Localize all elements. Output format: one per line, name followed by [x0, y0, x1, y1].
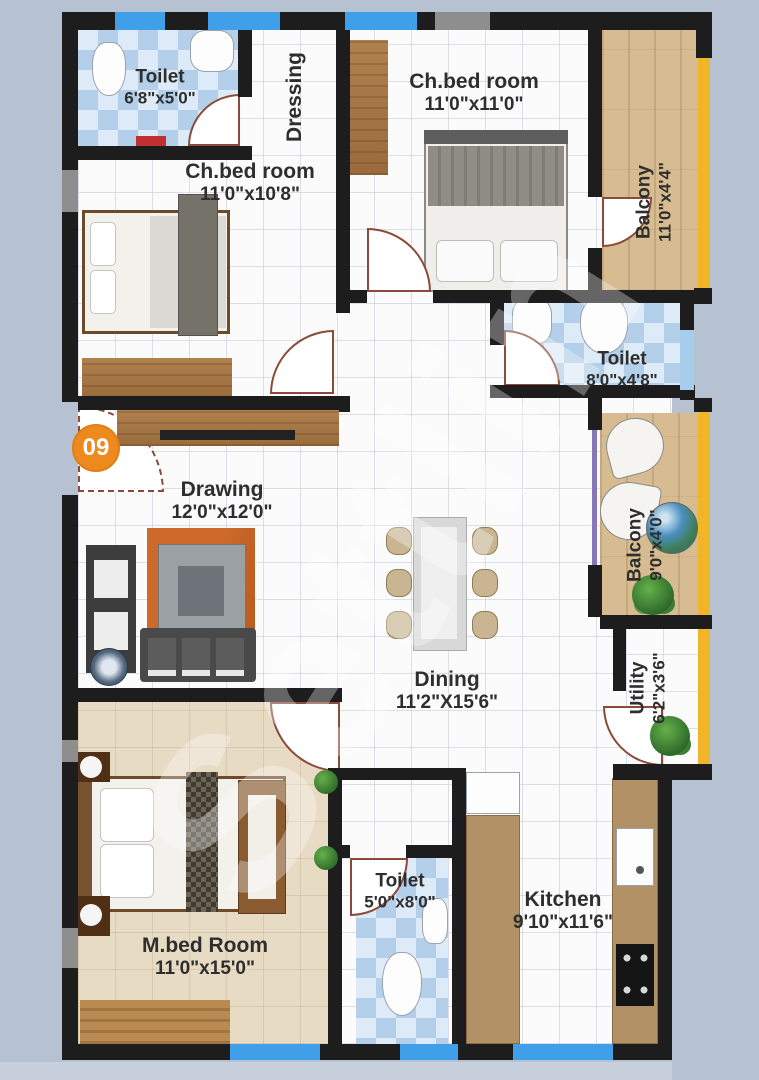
toilet1-wc	[92, 42, 126, 96]
drawing-label: Drawing 12'0"x12'0"	[171, 478, 272, 524]
mbed-wardrobe-mirror	[248, 795, 276, 899]
room-name: Balcony	[633, 162, 655, 242]
room-name: Toilet	[364, 870, 435, 892]
chbed2-right-wall	[588, 12, 602, 197]
mbed-bench	[80, 1000, 230, 1044]
drawing-speaker	[90, 648, 128, 686]
window	[208, 12, 280, 30]
chbed2-right-wall	[588, 248, 602, 303]
unit-number-badge: 09	[72, 424, 120, 472]
wall-column	[62, 170, 78, 212]
nightstand-lamp	[80, 904, 102, 926]
balcony1-edge	[698, 58, 710, 290]
mbed-top-wall	[62, 688, 342, 702]
utility-edge	[698, 615, 710, 765]
toilet2-label: Toilet 8'0"x4'8"	[586, 348, 657, 389]
chbed2-pillow	[500, 240, 558, 282]
sofa-cushion	[182, 638, 210, 676]
toilet1-label: Toilet 6'8"x5'0"	[124, 66, 195, 107]
room-dims: 6'8"x5'0"	[124, 88, 195, 108]
toilet2-left-wall	[490, 303, 504, 345]
toilet3-top-wall	[342, 845, 350, 858]
chbed1-pillow	[90, 270, 116, 314]
dining-chair	[472, 527, 498, 555]
room-name: Kitchen	[513, 888, 613, 912]
room-name: Dressing	[283, 52, 307, 142]
floor-plan-image: Settlin Toilet 6'8"x5'0" Dressing Ch.bed…	[0, 0, 759, 1080]
dining-chair	[472, 611, 498, 639]
chbed2-blanket	[428, 146, 564, 206]
lobby-top-wall	[342, 768, 462, 780]
wall-lintel	[435, 12, 490, 30]
balcony2-left-wall	[588, 565, 602, 617]
room-name: Ch.bed room	[409, 70, 539, 94]
room-name: Drawing	[171, 478, 272, 502]
mbed-label: M.bed Room 11'0"x15'0"	[142, 934, 268, 980]
room-name: M.bed Room	[142, 934, 268, 958]
toilet2-window	[680, 330, 694, 390]
balcony2-utility-wall	[600, 615, 712, 629]
room-name: Toilet	[586, 348, 657, 370]
chbed2-wardrobe	[348, 40, 388, 175]
window	[345, 12, 417, 30]
wall-right-top	[696, 30, 712, 58]
balcony2-left-wall	[588, 398, 602, 430]
room-dims: 11'0"x4'4"	[655, 162, 675, 242]
chbed2-bottom-wall	[336, 290, 367, 303]
room-name: Balcony	[624, 508, 646, 582]
room-dims: 12'0"x12'0"	[171, 502, 272, 524]
room-dims: 9'0"x4'0"	[646, 508, 666, 582]
toilet3-wc	[382, 952, 422, 1016]
dining-chair	[472, 569, 498, 597]
chbed2-bottom-wall	[433, 290, 695, 303]
sofa-cushion	[148, 638, 176, 676]
room-dims: 11'0"x11'0"	[409, 94, 539, 116]
wall-cap	[694, 398, 712, 412]
chbed1-pillow	[90, 222, 116, 266]
utility-bottom-wall	[613, 764, 712, 780]
toilet1-sink	[190, 30, 234, 72]
kitchen-counter-left	[466, 815, 520, 1044]
room-dims: 8'0"x4'8"	[586, 370, 657, 390]
drawing-tv-detail	[178, 566, 224, 616]
room-dims: 11'0"x10'8"	[185, 184, 315, 206]
room-dims: 11'2"X15'6"	[396, 692, 498, 714]
room-name: Ch.bed room	[185, 160, 315, 184]
kitchen-sink	[616, 828, 654, 886]
mbed-runner	[186, 772, 218, 912]
background-patch	[672, 780, 759, 1080]
toilet3-label: Toilet 5'0"x8'0"	[364, 870, 435, 911]
image-bottom-strip	[0, 1062, 759, 1080]
window	[513, 1044, 613, 1060]
dining-chair	[386, 527, 412, 555]
room-dims: 9'10"x11'6"	[513, 912, 613, 934]
wall-column	[62, 740, 78, 762]
room-dims: 11'0"x15'0"	[142, 958, 268, 980]
plant-icon	[314, 770, 338, 794]
toilet2-wc	[580, 296, 628, 354]
window	[230, 1044, 320, 1060]
toilet1-bottom-wall	[62, 146, 252, 160]
kitchen-right-wall	[658, 780, 672, 1044]
room-dims: 6'2"x3'6"	[649, 652, 669, 723]
chbed2-headboard	[424, 130, 568, 144]
dining-label: Dining 11'2"X15'6"	[396, 668, 498, 714]
window	[400, 1044, 458, 1060]
dining-chair	[386, 569, 412, 597]
chbed1-right-wall	[336, 12, 350, 313]
utility-left-wall	[613, 629, 626, 691]
mbed-pillow	[100, 788, 154, 842]
kitchen-left-wall	[452, 768, 466, 1045]
drawing-cabinet-door	[94, 560, 128, 598]
tv-console	[117, 410, 339, 446]
chbed1-label: Ch.bed room 11'0"x10'8"	[185, 160, 315, 206]
room-dims: 5'0"x8'0"	[364, 892, 435, 912]
tv-screen	[160, 430, 295, 440]
chbed2-pillow	[436, 240, 494, 282]
nightstand-lamp	[80, 756, 102, 778]
chbed1-wardrobe	[178, 194, 218, 336]
room-name: Dining	[396, 668, 498, 692]
mbed-headboard	[78, 776, 92, 912]
room-name: Toilet	[124, 66, 195, 88]
chbed1-dresser	[82, 358, 232, 398]
wall-cap	[694, 288, 712, 304]
utility-label: Utility 6'2"x3'6"	[627, 652, 668, 723]
drawing-cabinet-door	[94, 612, 128, 650]
balcony2-edge	[698, 410, 710, 615]
dining-chair	[386, 611, 412, 639]
kitchen-label: Kitchen 9'10"x11'6"	[513, 888, 613, 934]
balcony1-label: Balcony 11'0"x4'4"	[633, 162, 674, 242]
mbed-right-wall	[328, 768, 342, 1045]
kitchen-fridge-slot	[466, 772, 520, 814]
balcony2-label: Balcony 9'0"x4'0"	[624, 508, 665, 582]
balcony2-sliding-door	[592, 430, 597, 565]
mbed-pillow	[100, 844, 154, 898]
chbed1-bottom-wall	[78, 396, 347, 410]
kitchen-sink-drain	[636, 866, 644, 874]
kitchen-stove	[616, 944, 654, 1006]
plant-icon	[314, 846, 338, 870]
sofa-cushion	[216, 638, 244, 676]
dressing-label: Dressing	[283, 52, 307, 142]
window	[115, 12, 165, 30]
toilet1-mat	[136, 136, 166, 146]
wall-column	[62, 928, 78, 968]
dining-table-top	[421, 527, 457, 639]
balcony1-floor	[602, 30, 698, 290]
chbed2-label: Ch.bed room 11'0"x11'0"	[409, 70, 539, 116]
room-name: Utility	[627, 652, 649, 723]
